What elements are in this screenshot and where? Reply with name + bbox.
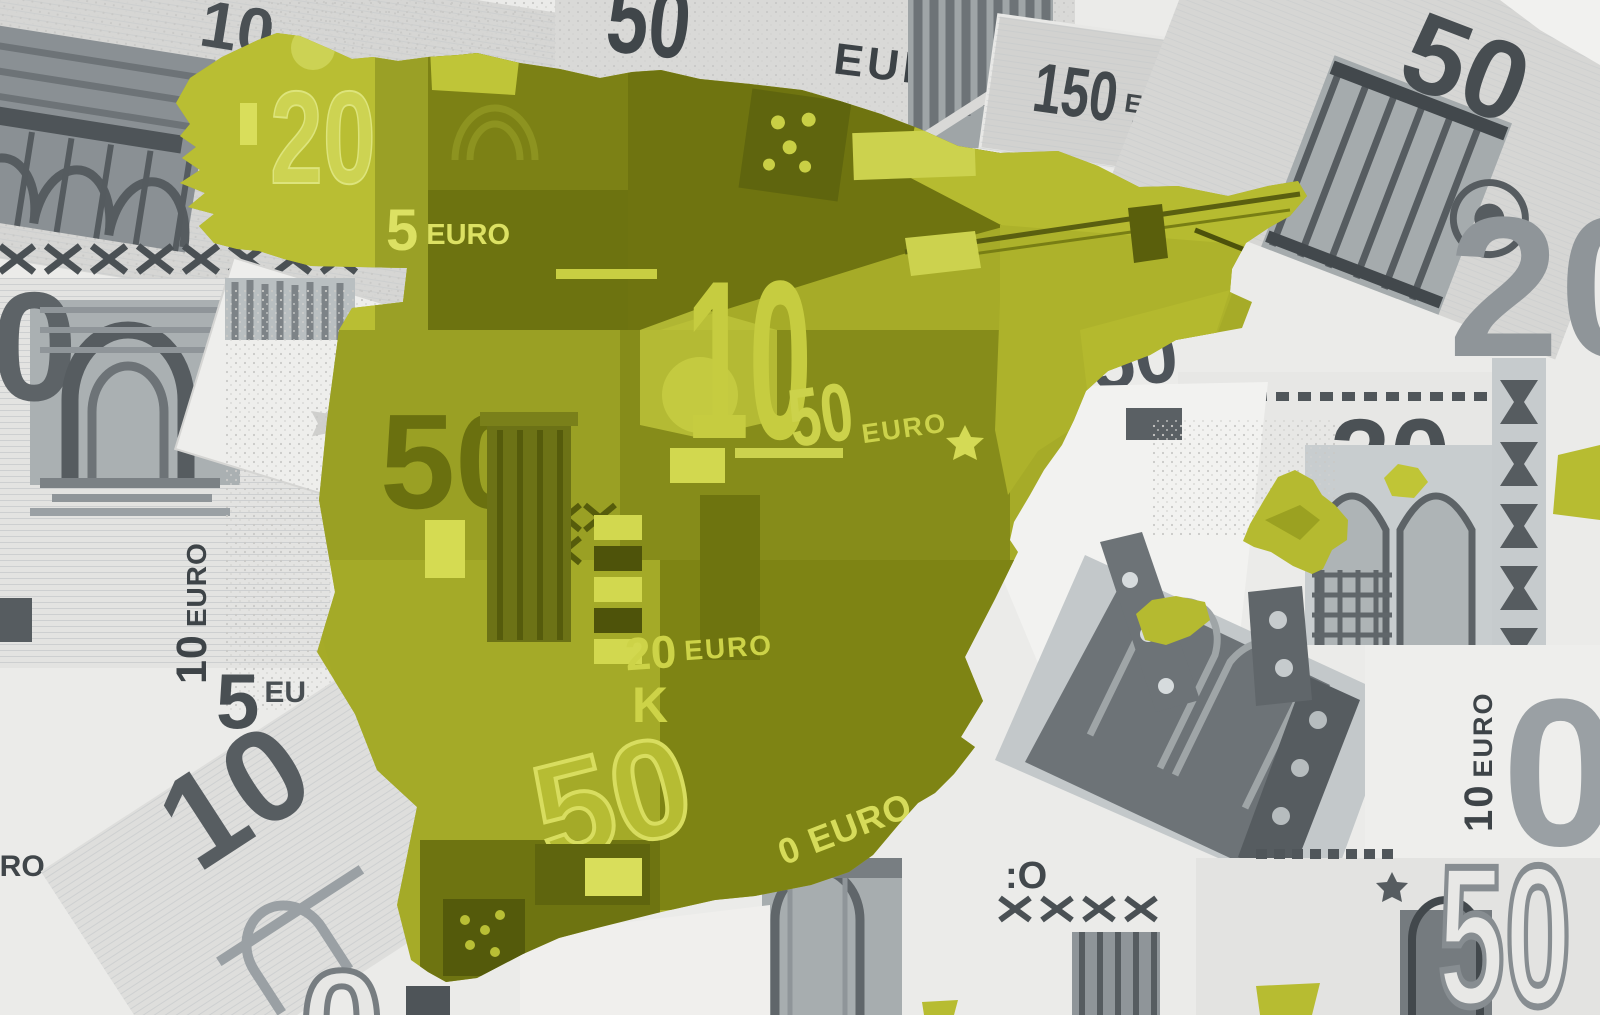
svg-text::O: :O xyxy=(1005,855,1047,897)
svg-text:20: 20 xyxy=(270,65,376,212)
svg-text:50: 50 xyxy=(1438,824,1571,1015)
svg-text:150: 150 xyxy=(1029,48,1123,137)
svg-text:EURO: EURO xyxy=(0,850,45,883)
svg-text:0: 0 xyxy=(300,939,383,1015)
svg-text:K: K xyxy=(632,677,668,733)
svg-text:50: 50 xyxy=(602,0,697,81)
